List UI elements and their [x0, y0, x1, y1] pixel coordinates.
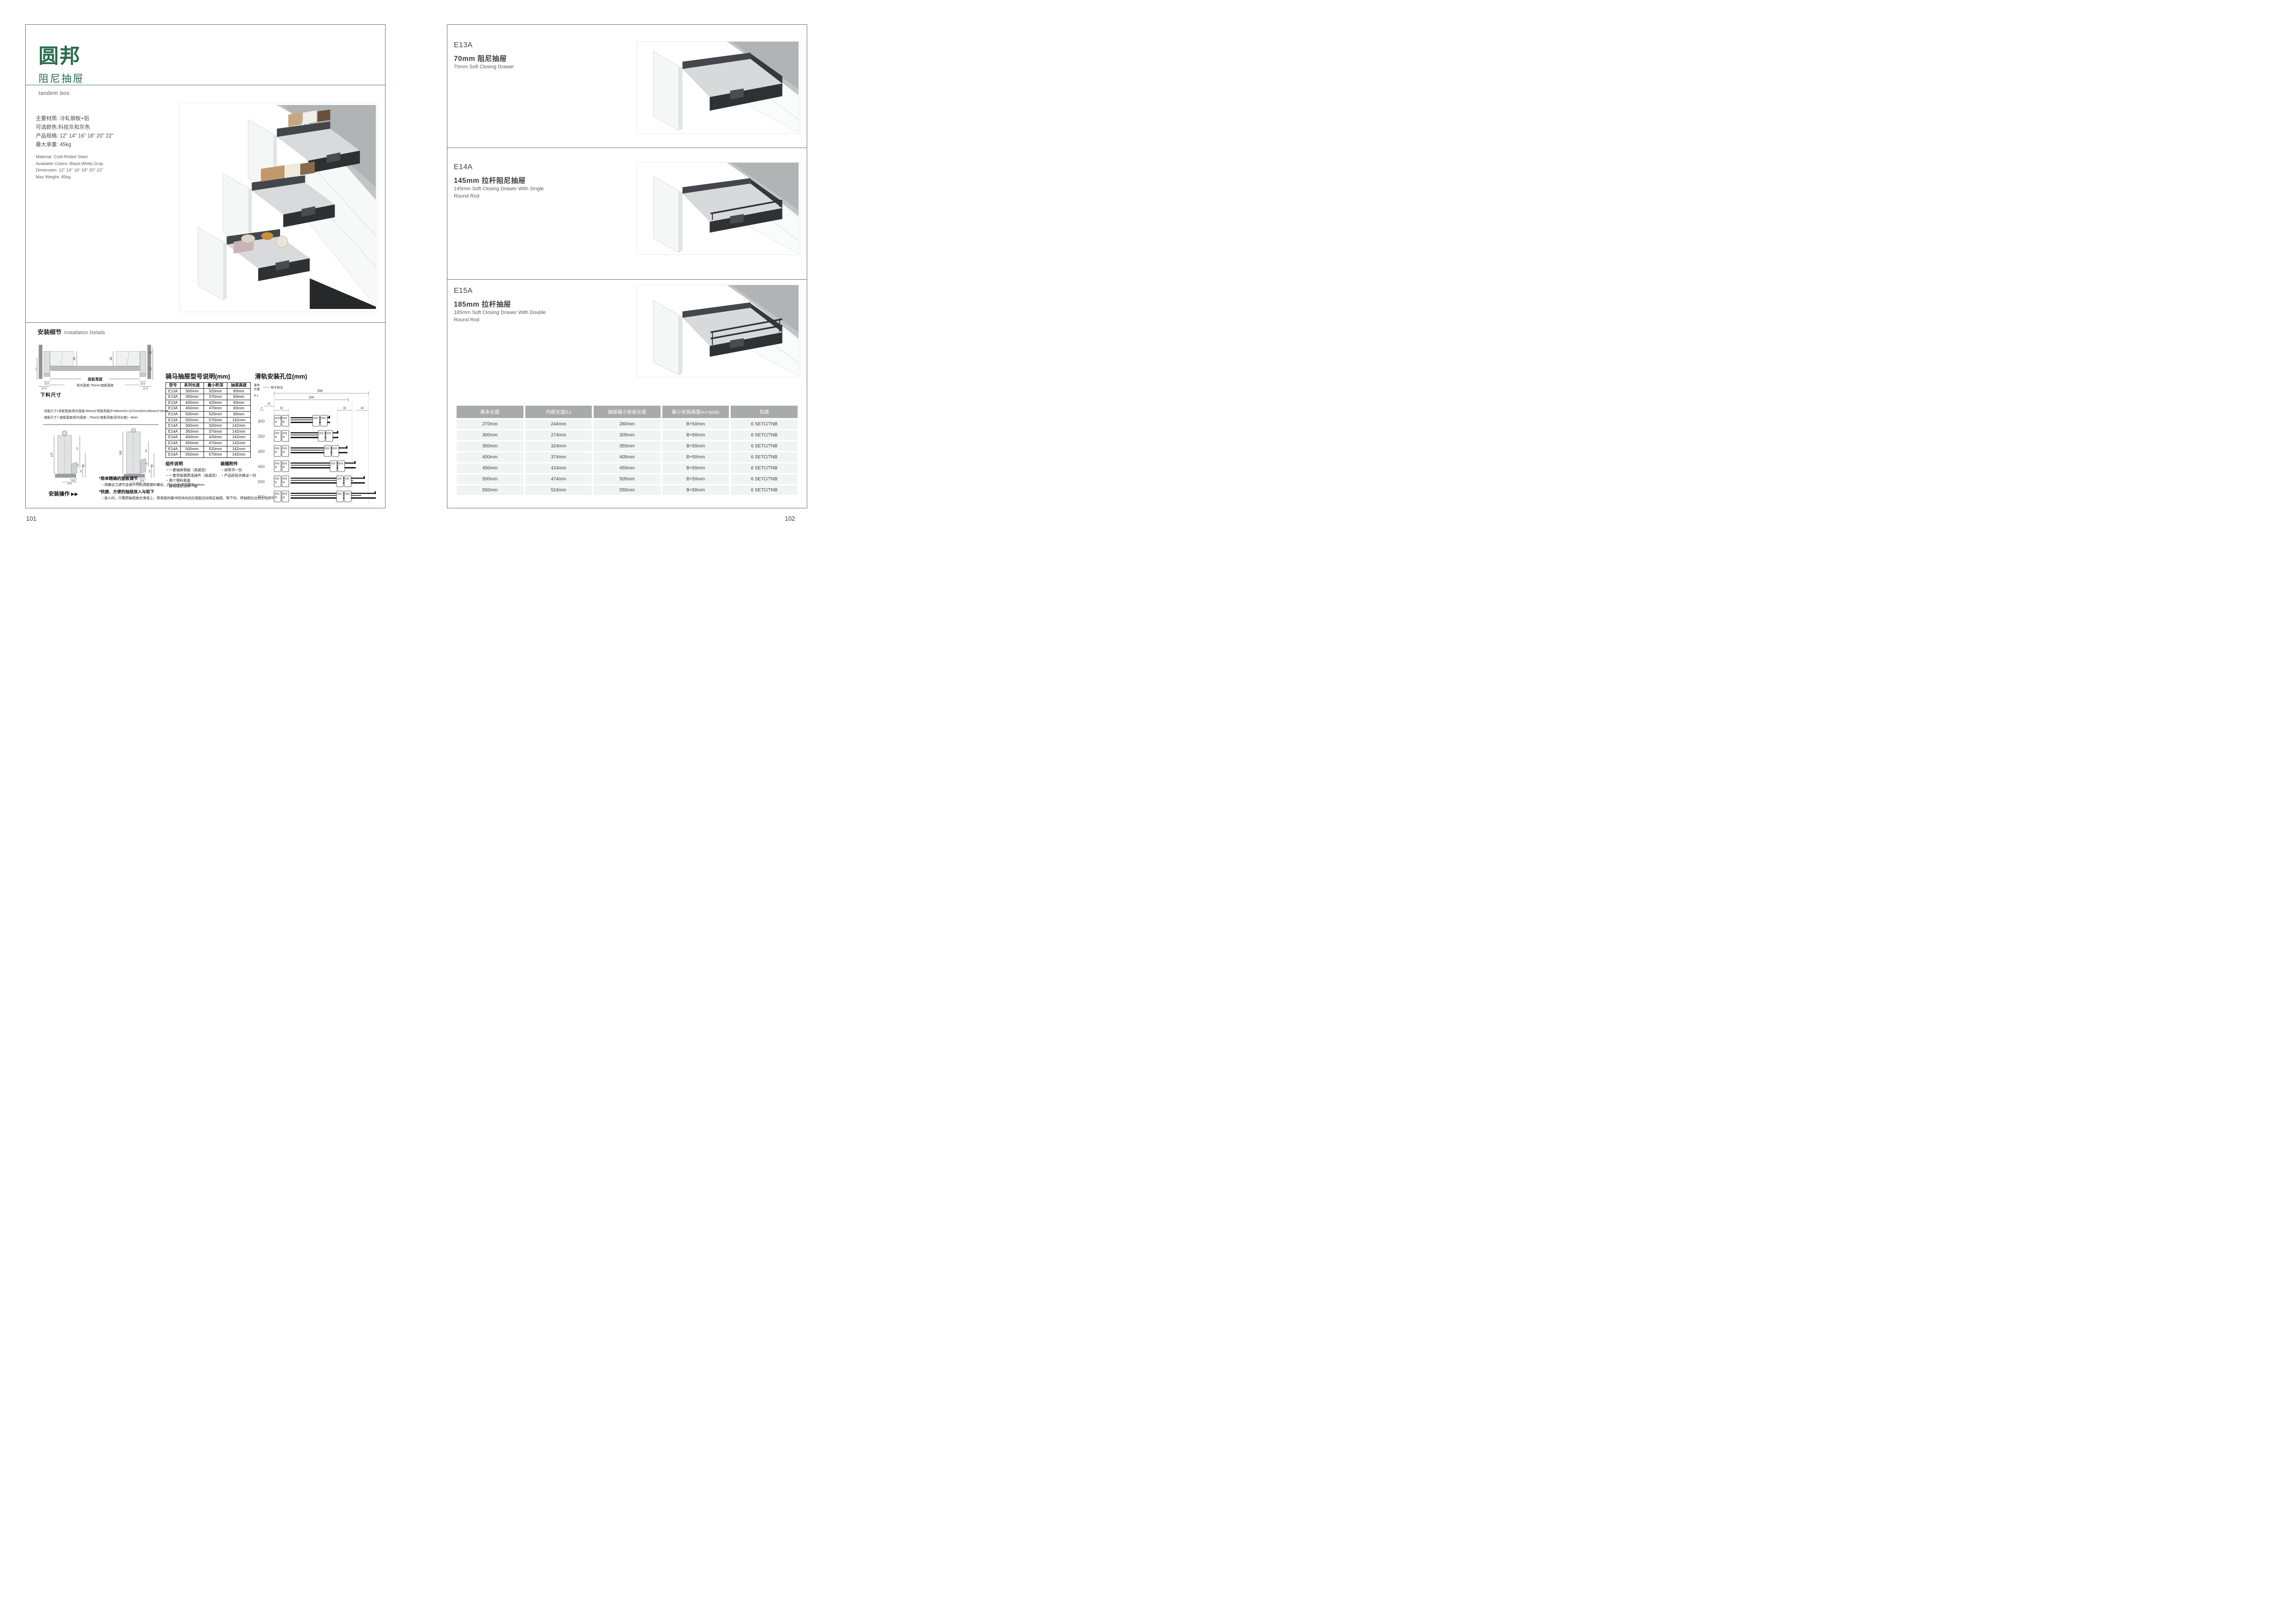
model-col-depth: 最小柜深 [204, 383, 227, 389]
spec-line: 主要材质: 冷轧钢板+铝 [36, 115, 114, 123]
table-row: 350mm324mm355mmB+50mm6 SETC/TNB [457, 441, 798, 451]
dim-16-5-left: 16.5 [44, 383, 49, 385]
cutting-underline [43, 424, 159, 425]
table-cell: E14A [166, 446, 181, 452]
page-number-right: 102 [785, 515, 795, 522]
components-list: ・一套抽屉侧板（高或低）・一套背板钢质连接件（高或低）・两个塑料侧盖・静音阻尼滑… [165, 468, 219, 489]
specs-cn: 主要材质: 冷轧钢板+铝可选颜色:科技灰和灰色产品规格: 12" 14" 16"… [36, 115, 114, 149]
accessory-item: ・产品检验合格证一份 [220, 473, 256, 479]
table-cell: E13A [166, 400, 181, 406]
table-cell: 83mm [227, 394, 250, 400]
table-cell: B+50mm [662, 463, 729, 473]
rail-row-500: 500 [258, 476, 365, 487]
table-row: E13A350mm370mm83mm [166, 394, 251, 400]
table-cell: 550mm [457, 485, 523, 495]
table-row: 450mm424mm455mmB+50mm6 SETC/TNB [457, 463, 798, 473]
size-col-inner-length: 内部长度(L) [525, 406, 592, 418]
product-name-cn-e13a: 70mm 阻尼抽屉 [454, 53, 507, 63]
dim-16-5-b: 16.5 [140, 479, 144, 482]
table-cell: 350mm [180, 429, 204, 435]
table-cell: B+50mm [662, 474, 729, 484]
rail-row-550: 550 [258, 491, 376, 502]
table-cell: 142mm [227, 452, 250, 458]
rail-length-label: 550 [258, 495, 264, 499]
section-divider-2 [447, 279, 807, 280]
rail-length-label: 350 [258, 434, 264, 439]
table-cell: 83mm [227, 388, 250, 394]
table-row: E14A400mm420mm142mm [166, 435, 251, 440]
table-cell: E13A [166, 406, 181, 412]
dim-37-5-a: 37.5 [67, 483, 72, 485]
size-col-packing: 包装 [731, 406, 798, 418]
rail-front-edge-label: 柜子前沿 [271, 385, 283, 390]
table-cell: 6 SETC/TNB [731, 485, 798, 495]
rail-dim-32a: 32 [280, 407, 283, 410]
table-cell: 142mm [227, 435, 250, 440]
table-row: 270mm244mm280mmB+50mm6 SETC/TNB [457, 419, 798, 429]
table-cell: 142mm [227, 417, 250, 423]
table-row: E13A300mm320mm83mm [166, 388, 251, 394]
table-cell: 83mm [227, 411, 250, 417]
product-code-e14a: E14A [454, 163, 473, 171]
rail-row-400: 400 [258, 446, 347, 457]
brand-series: 阻尼抽屉 [39, 71, 84, 85]
table-cell: 355mm [594, 441, 661, 451]
table-cell: 550mm [180, 417, 204, 423]
table-cell: 424mm [525, 463, 592, 473]
label-bottom-width: 底板宽度 [87, 377, 103, 381]
table-cell: 520mm [204, 411, 227, 417]
page-left: 圆邦 阻尼抽屉 tandem box 主要材质: 冷轧钢板+铝可选颜色:科技灰和… [25, 24, 386, 508]
table-cell: 274mm [525, 430, 592, 440]
dim-16-5-a: 16.5 [71, 479, 76, 482]
table-cell: 6 SETC/TNB [731, 441, 798, 451]
rail-length-label: 300 [258, 419, 264, 424]
table-cell: 305mm [594, 430, 661, 440]
rail-dim-37: 37 [268, 403, 271, 406]
table-cell: 405mm [594, 452, 661, 462]
table-cell: 420mm [204, 435, 227, 440]
label-width-formula: 柜内宽度-75mm=底板宽度 [77, 383, 113, 387]
spec-line: 可选颜色:科技灰和灰色 [36, 123, 114, 132]
table-row: E13A500mm520mm83mm [166, 411, 251, 417]
model-table: 型号 系列长度 最小柜深 抽屉高度 E13A300mm320mm83mmE13A… [165, 382, 251, 458]
spec-line: 最大承重: 45kg [36, 141, 114, 149]
table-cell: B+50mm [662, 485, 729, 495]
table-cell: 455mm [594, 463, 661, 473]
table-cell: E13A [166, 417, 181, 423]
install-divider [26, 322, 385, 323]
page-number-left: 101 [26, 515, 37, 522]
component-item: ・一套背板钢质连接件（高或低） [165, 473, 219, 479]
table-cell: 244mm [525, 419, 592, 429]
dim-127: 127 [51, 452, 54, 457]
table-cell: 350mm [457, 441, 523, 451]
dim-32-a: 32 [77, 464, 79, 467]
table-cell: 320mm [204, 423, 227, 429]
cutting-title: 下料尺寸 [40, 391, 61, 398]
note1-head: *简单精确的面板调节 [99, 476, 138, 482]
section-divider-1 [447, 148, 807, 148]
table-cell: 500mm [180, 411, 204, 417]
drawer-cabinet-illustration [180, 103, 376, 311]
table-cell: 400mm [180, 400, 204, 406]
main-product-image [179, 103, 377, 312]
table-row: E14A300mm320mm142mm [166, 423, 251, 429]
product-image-e15a [636, 285, 800, 377]
table-row: E13A450mm470mm83mm [166, 406, 251, 412]
table-cell: 470mm [204, 406, 227, 412]
table-cell: 270mm [457, 419, 523, 429]
table-cell: 474mm [525, 474, 592, 484]
component-item: ・静音阻尼滑轨一套 [165, 484, 219, 489]
rail-axis-label-3: N L [254, 394, 259, 397]
table-cell: 300mm [180, 388, 204, 394]
table-cell: E14A [166, 440, 181, 446]
spec-line-en: Max Weight: 45kg [36, 174, 103, 181]
install-op-label: 安装操作▶▶ [49, 490, 78, 498]
install-title-en: Installation Details [64, 330, 105, 336]
dim-86-a: 86 [83, 464, 85, 467]
rail-dim-9: 9 [261, 407, 262, 410]
rail-axis-label-2: 长度 [254, 387, 260, 391]
cutting-line-1: 背板尺寸=背板宽度(柜内宽度-85mm)*背板高度(P=68mm/G=127mm… [44, 409, 168, 414]
table-cell: 555mm [594, 485, 661, 495]
table-cell: 450mm [180, 440, 204, 446]
accessory-item: ・说明书一份 [220, 468, 256, 473]
table-row: E14A450mm470mm142mm [166, 440, 251, 446]
spec-line-en: Available Colors: Black,White,Gray [36, 161, 103, 168]
rail-dim-224: 224 [309, 396, 314, 399]
table-cell: 6 SETC/TNB [731, 419, 798, 429]
table-row: 550mm524mm555mmB+50mm6 SETC/TNB [457, 485, 798, 495]
rail-axis-label-1: 基本 [254, 383, 260, 387]
spec-line-en: Material: Cold-Rolled Steel [36, 154, 103, 161]
table-cell: 450mm [180, 406, 204, 412]
table-row: 500mm474mm505mmB+50mm6 SETC/TNB [457, 474, 798, 484]
size-col-min-install-height-main: 最小安装高度 [672, 409, 700, 415]
table-cell: 142mm [227, 446, 250, 452]
specs-en: Material: Cold-Rolled SteelAvailable Col… [36, 154, 103, 181]
table-cell: 370mm [204, 394, 227, 400]
table-cell: 324mm [525, 441, 592, 451]
dim-16-5-right: 16.5 [141, 383, 145, 385]
table-cell: 470mm [204, 440, 227, 446]
op-arrows-icon: ▶▶ [71, 492, 78, 497]
rail-length-label: 500 [258, 479, 264, 484]
section-low-panel: 127 77 32 54 86 16.5 37.5 [51, 431, 85, 485]
dim-68-right: 68 [110, 357, 113, 360]
table-cell: 570mm [204, 417, 227, 423]
spec-line: 产品规格: 12" 14" 16" 18" 20" 22" [36, 132, 114, 141]
brand-series-en: tandem box [39, 90, 84, 96]
table-cell: 500mm [457, 474, 523, 484]
table-row: 400mm374mm405mmB+50mm6 SETC/TNB [457, 452, 798, 462]
rail-row-450: 450 [258, 461, 356, 472]
table-cell: 300mm [180, 423, 204, 429]
table-row: 300mm274mm305mmB+50mm6 SETC/TNB [457, 430, 798, 440]
install-title-cn: 安装细节 [38, 329, 61, 336]
table-cell: 320mm [204, 388, 227, 394]
dim-37-5-right: 37.5 [143, 387, 148, 390]
accessories-list: ・说明书一份・产品检验合格证一份 [220, 468, 256, 478]
table-cell: 420mm [204, 400, 227, 406]
table-cell: 280mm [594, 419, 661, 429]
table-cell: 400mm [457, 452, 523, 462]
product-image-e14a [636, 162, 800, 255]
product-name-en-e15a: 185mm Soft Closing Drawer With Double Ro… [454, 309, 559, 324]
dim-68-left: 68 [73, 357, 76, 360]
table-cell: B+50mm [662, 430, 729, 440]
dim-77: 77 [77, 447, 79, 450]
dim-180: 180 [120, 450, 122, 455]
size-col-basic-length: 基本长度 [457, 406, 523, 418]
rail-dim-32c: 32 [361, 407, 364, 410]
table-cell: 83mm [227, 400, 250, 406]
product-name-cn-e14a: 145mm 拉杆阻尼抽屉 [454, 175, 526, 185]
table-cell: 524mm [525, 485, 592, 495]
table-cell: 142mm [227, 423, 250, 429]
dim-46: 46 [36, 367, 37, 370]
size-col-min-install-length: 抽屉最小安装长度 [594, 406, 661, 418]
table-cell: 142mm [227, 429, 250, 435]
table-cell: E14A [166, 423, 181, 429]
spec-line-en: Dimension: 12" 14" 16" 18" 20" 22" [36, 167, 103, 174]
cutting-line-2: 底板尺寸＝底板宽度(柜内宽度－75mm)*底板深度(系列长度)－8mm [44, 415, 138, 420]
install-heading: 安装细节Installation Details [38, 327, 105, 336]
page-right: E13A 70mm 阻尼抽屉 70mm Soft Closing Drawer … [447, 24, 807, 508]
dim-32: 32 [150, 351, 153, 354]
dim-54-a: 54 [80, 470, 83, 473]
size-table-header-row: 基本长度 内部长度(L) 抽屉最小安装长度 最小安装高度(B=产品高度) 包装 [457, 406, 798, 418]
rail-hole-diagram: 基本 长度 N L 柜子前沿 256 224 37 9 32 32 32 [253, 381, 380, 506]
table-cell: E13A [166, 411, 181, 417]
rail-dim-32b: 32 [343, 407, 347, 410]
rail-diagram-title: 滑轨安装孔位(mm) [255, 371, 307, 380]
components-title: 组件说明 [165, 460, 183, 467]
drawer-illustration-e14a [637, 163, 799, 253]
component-item: ・两个塑料侧盖 [165, 478, 219, 484]
product-name-cn-e15a: 185mm 拉杆抽屉 [454, 299, 511, 309]
op-label-text: 安装操作 [49, 491, 70, 497]
table-cell: B+50mm [662, 419, 729, 429]
table-cell: E14A [166, 435, 181, 440]
table-cell: 374mm [525, 452, 592, 462]
table-cell: 450mm [457, 463, 523, 473]
catalog-spread: 圆邦 阻尼抽屉 tandem box 主要材质: 冷轧钢板+铝可选颜色:科技灰和… [0, 0, 830, 541]
brand-name: 圆邦 [39, 39, 84, 69]
product-code-e15a: E15A [454, 287, 473, 295]
table-cell: B+50mm [662, 441, 729, 451]
rail-length-label: 400 [258, 449, 264, 454]
product-name-en-e13a: 70mm Soft Closing Drawer [454, 63, 559, 71]
table-cell: 505mm [594, 474, 661, 484]
bottom-drawer [198, 227, 310, 300]
table-cell: 300mm [457, 430, 523, 440]
table-cell: B+50mm [662, 452, 729, 462]
model-col-height: 抽屉高度 [227, 383, 250, 389]
size-col-min-install-height: 最小安装高度(B=产品高度) [662, 406, 729, 418]
table-row: E13A550mm570mm142mm [166, 417, 251, 423]
size-table: 基本长度 内部长度(L) 抽屉最小安装长度 最小安装高度(B=产品高度) 包装 … [455, 404, 799, 496]
dim-32-b: 32 [145, 462, 148, 465]
table-cell: 520mm [204, 446, 227, 452]
drawer-illustration-e15a [637, 285, 799, 376]
table-cell: 570mm [204, 452, 227, 458]
table-cell: E14A [166, 452, 181, 458]
table-cell: 550mm [180, 452, 204, 458]
dim-86-b: 86 [151, 464, 154, 467]
table-cell: 350mm [180, 394, 204, 400]
table-cell: 6 SETC/TNB [731, 463, 798, 473]
accessories-title: 装箱附件 [220, 460, 238, 467]
table-cell: 6 SETC/TNB [731, 474, 798, 484]
dim-37-5-left: 37.5 [42, 387, 47, 390]
table-cell: E14A [166, 429, 181, 435]
rail-row-350: 350 [258, 430, 338, 441]
cross-section-diagram: 68 68 46 32 54 16.5 16.5 37.5 37.5 底板宽度 … [36, 339, 154, 391]
dim-54-b: 54 [149, 470, 151, 473]
product-code-e13a: E13A [454, 41, 473, 50]
model-table-title: 骑马抽屉型号说明(mm) [165, 371, 230, 380]
table-cell: 142mm [227, 440, 250, 446]
table-cell: 370mm [204, 429, 227, 435]
component-item: ・一套抽屉侧板（高或低） [165, 468, 219, 473]
rail-row-300: 300 [258, 415, 330, 426]
table-row: E13A400mm420mm83mm [166, 400, 251, 406]
product-name-en-e14a: 145mm Soft Closing Drawer With Single Ro… [454, 185, 559, 200]
table-cell: 83mm [227, 406, 250, 412]
table-cell: 6 SETC/TNB [731, 452, 798, 462]
table-row: E14A550mm570mm142mm [166, 452, 251, 458]
table-cell: E13A [166, 388, 181, 394]
drawer-illustration-e13a [637, 42, 799, 132]
dim-54: 54 [150, 367, 153, 370]
table-row: E14A500mm520mm142mm [166, 446, 251, 452]
rail-dim-256: 256 [317, 390, 323, 393]
model-col-length: 系列长度 [180, 383, 204, 389]
table-cell: 500mm [180, 446, 204, 452]
table-row: E14A350mm370mm142mm [166, 429, 251, 435]
model-table-header-row: 型号 系列长度 最小柜深 抽屉高度 [166, 383, 251, 389]
size-col-min-install-height-suffix: (B=产品高度) [700, 411, 719, 414]
product-image-e13a [636, 41, 800, 134]
table-cell: E13A [166, 394, 181, 400]
table-cell: 400mm [180, 435, 204, 440]
model-col-type: 型号 [166, 383, 181, 389]
brand-header: 圆邦 阻尼抽屉 tandem box [39, 39, 84, 96]
table-cell: 6 SETC/TNB [731, 430, 798, 440]
dim-57: 57 [145, 449, 148, 452]
rail-length-label: 450 [258, 464, 264, 469]
note2-head: *快捷、方便的抽屉放入与取下 [99, 489, 154, 495]
header-divider [26, 85, 385, 85]
